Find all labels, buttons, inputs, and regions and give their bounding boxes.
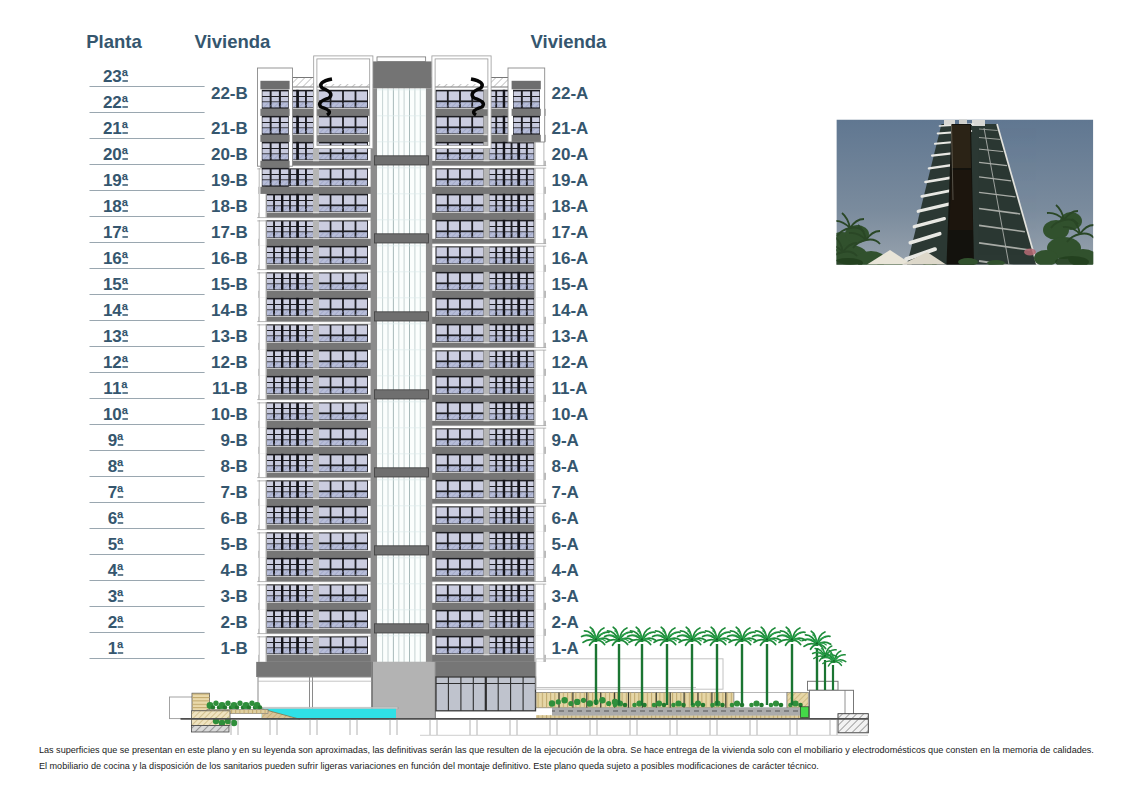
svg-text:5ª: 5ª [108, 535, 124, 554]
svg-text:17-B: 17-B [211, 223, 248, 242]
svg-text:12-B: 12-B [211, 353, 248, 372]
svg-text:20-A: 20-A [552, 145, 589, 164]
svg-text:18-A: 18-A [552, 197, 589, 216]
svg-text:Vivienda: Vivienda [195, 31, 271, 52]
svg-text:15ª: 15ª [103, 275, 129, 294]
svg-text:Vivienda: Vivienda [531, 31, 607, 52]
svg-text:16-A: 16-A [552, 249, 589, 268]
svg-text:3-B: 3-B [220, 587, 247, 606]
svg-text:12ª: 12ª [103, 353, 129, 372]
svg-text:21-B: 21-B [211, 119, 248, 138]
svg-text:8-A: 8-A [552, 457, 579, 476]
svg-text:10-B: 10-B [211, 405, 248, 424]
svg-text:2ª: 2ª [108, 613, 124, 632]
svg-text:1-A: 1-A [552, 639, 579, 658]
svg-text:4-B: 4-B [220, 561, 247, 580]
svg-text:20-B: 20-B [211, 145, 248, 164]
svg-text:14ª: 14ª [103, 301, 129, 320]
svg-text:11-B: 11-B [212, 379, 248, 398]
svg-text:3ª: 3ª [108, 587, 124, 606]
svg-text:16ª: 16ª [103, 249, 129, 268]
svg-text:8-B: 8-B [220, 457, 247, 476]
svg-text:Planta: Planta [86, 31, 142, 52]
svg-text:2-B: 2-B [220, 613, 247, 632]
svg-text:13-B: 13-B [211, 327, 248, 346]
svg-text:2-A: 2-A [552, 613, 579, 632]
svg-text:3-A: 3-A [552, 587, 579, 606]
svg-text:9ª: 9ª [108, 431, 124, 450]
svg-text:18-B: 18-B [211, 197, 248, 216]
svg-text:22-A: 22-A [552, 84, 589, 103]
svg-text:22ª: 22ª [103, 93, 129, 112]
svg-text:11ª: 11ª [103, 379, 128, 398]
svg-text:19ª: 19ª [103, 171, 129, 190]
svg-text:El mobiliario de cocina y la d: El mobiliario de cocina y la disposición… [39, 761, 819, 771]
svg-text:13-A: 13-A [552, 327, 589, 346]
svg-text:15-A: 15-A [552, 275, 589, 294]
svg-text:6-B: 6-B [220, 509, 247, 528]
svg-text:7-B: 7-B [220, 483, 247, 502]
svg-text:9-A: 9-A [552, 431, 579, 450]
svg-text:5-B: 5-B [220, 535, 247, 554]
svg-text:17ª: 17ª [103, 223, 129, 242]
svg-text:15-B: 15-B [211, 275, 248, 294]
svg-text:23ª: 23ª [103, 67, 129, 86]
svg-text:12-A: 12-A [552, 353, 589, 372]
svg-text:7ª: 7ª [108, 483, 124, 502]
svg-text:20ª: 20ª [103, 145, 129, 164]
svg-text:19-B: 19-B [211, 171, 248, 190]
svg-text:4ª: 4ª [108, 561, 124, 580]
svg-text:21-A: 21-A [552, 119, 589, 138]
svg-text:13ª: 13ª [103, 327, 129, 346]
svg-text:1ª: 1ª [108, 639, 124, 658]
svg-text:21ª: 21ª [103, 119, 129, 138]
svg-text:14-A: 14-A [552, 301, 589, 320]
svg-text:19-A: 19-A [552, 171, 589, 190]
svg-text:4-A: 4-A [552, 561, 579, 580]
svg-text:10ª: 10ª [103, 405, 129, 424]
svg-text:16-B: 16-B [211, 249, 248, 268]
svg-text:22-B: 22-B [211, 84, 248, 103]
svg-text:Las superficies que se present: Las superficies que se presentan en este… [39, 745, 1094, 755]
svg-text:8ª: 8ª [108, 457, 124, 476]
svg-text:6-A: 6-A [552, 509, 579, 528]
svg-text:14-B: 14-B [211, 301, 248, 320]
svg-text:18ª: 18ª [103, 197, 129, 216]
svg-text:5-A: 5-A [552, 535, 579, 554]
svg-text:9-B: 9-B [220, 431, 247, 450]
svg-text:11-A: 11-A [552, 379, 588, 398]
svg-text:17-A: 17-A [552, 223, 589, 242]
svg-text:6ª: 6ª [108, 509, 124, 528]
svg-text:10-A: 10-A [552, 405, 589, 424]
svg-text:1-B: 1-B [220, 639, 247, 658]
svg-text:7-A: 7-A [552, 483, 579, 502]
